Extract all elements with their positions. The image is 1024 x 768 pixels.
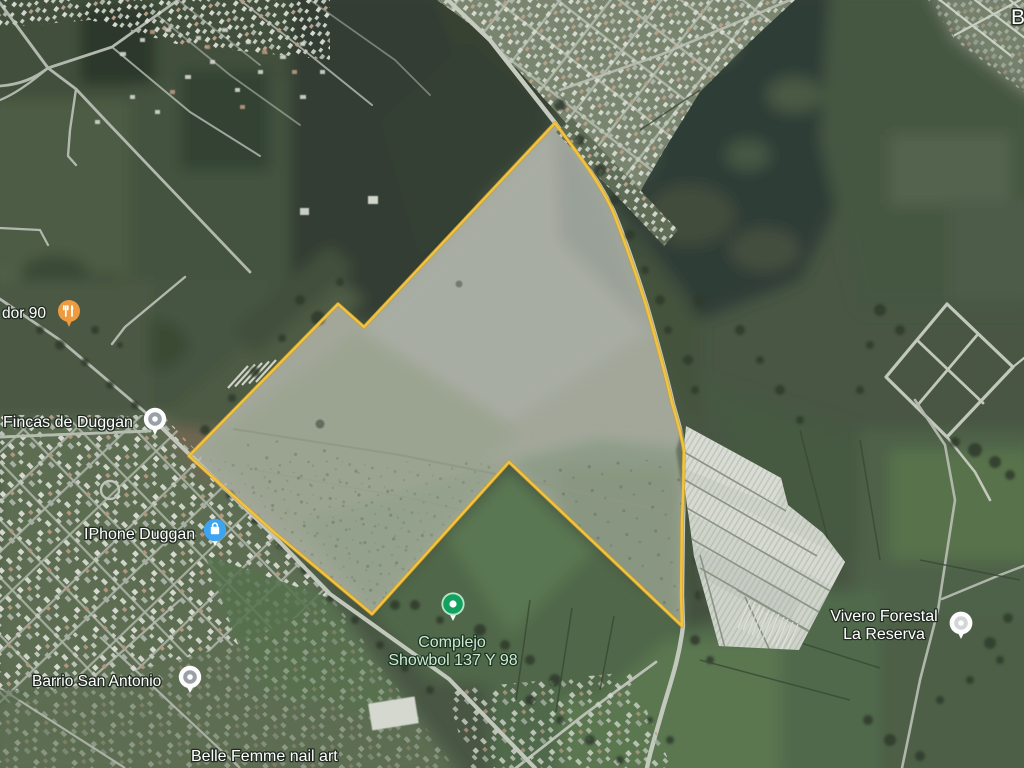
svg-text:Belle Femme nail art: Belle Femme nail art (191, 748, 338, 765)
svg-text:Vivero Forestal: Vivero Forestal (830, 608, 937, 625)
svg-text:Fincas de Duggan: Fincas de Duggan (3, 414, 133, 431)
svg-text:La Reserva: La Reserva (843, 626, 925, 643)
svg-text:Barrio San Antonio: Barrio San Antonio (32, 673, 161, 690)
svg-text:Complejo: Complejo (418, 634, 486, 651)
svg-text:IPhone Duggan: IPhone Duggan (84, 526, 195, 543)
svg-text:dor 90: dor 90 (2, 305, 46, 322)
svg-text:Showbol 137 Y 98: Showbol 137 Y 98 (388, 652, 517, 669)
svg-text:B: B (1011, 6, 1024, 29)
